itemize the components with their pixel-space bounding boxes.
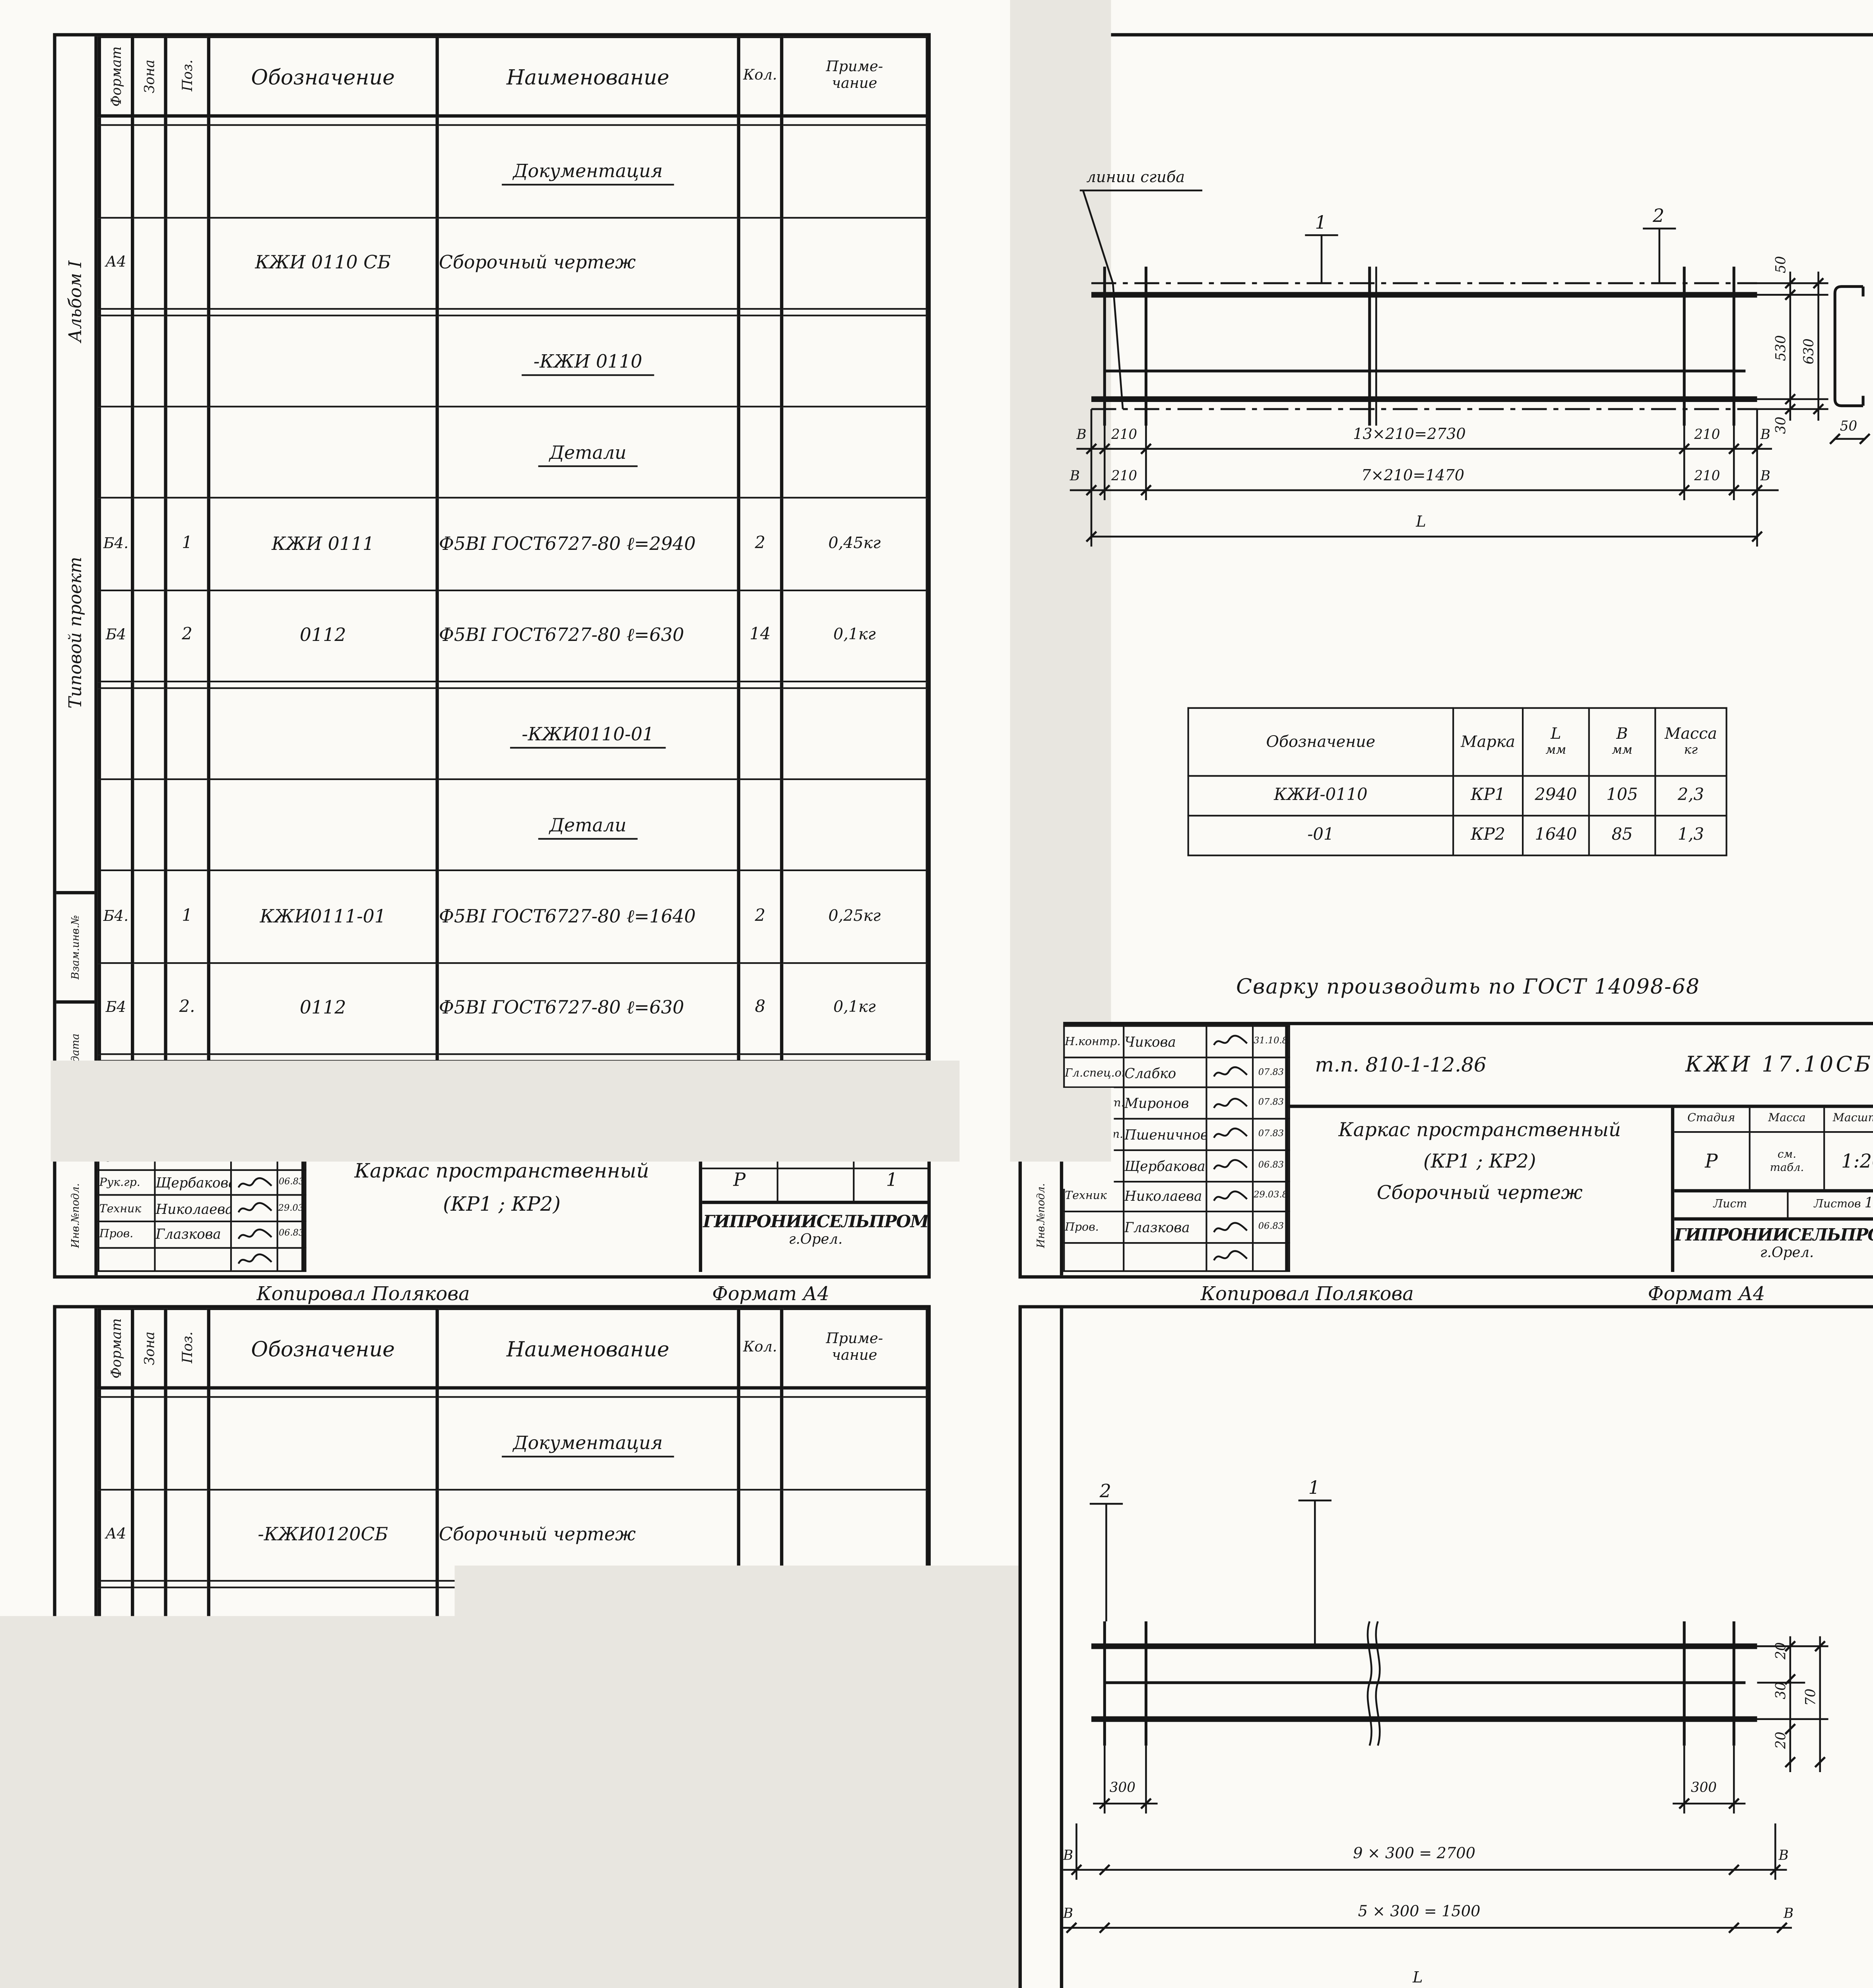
col-format: Формат — [109, 46, 122, 107]
col-zone: Зона — [142, 59, 156, 93]
person-date: 07.83 — [278, 1118, 306, 1143]
type-project-number: т.п. 810-1-12.86 — [1315, 1053, 1486, 1076]
svg-text:В: В — [1760, 427, 1770, 443]
weld-note: Сварку производить по ГОСТ 14098-68 — [1063, 974, 1873, 998]
cell-pos — [166, 1679, 209, 1770]
horizontal-dimension-chains: 300 300 В 9 × 300 = 2700 В В 5 — [1063, 1745, 1793, 1988]
person-date: 07.83 — [1253, 1057, 1289, 1088]
person-date: 29.03.83 — [1253, 1181, 1289, 1212]
spec-row: Детали — [99, 779, 928, 871]
cell-qty — [739, 681, 782, 688]
cell-zone — [132, 116, 165, 126]
signature-squiggle — [234, 1175, 274, 1190]
title-block-spec-0110: Н.контр. Чикова 31.10.83 Гл.спец.отд — [98, 1062, 929, 1272]
cell-pos — [166, 1489, 209, 1580]
person-date: 07.83 — [1253, 1088, 1289, 1119]
marks-header: Обозначение Марка Lмм Вмм Массакг — [1188, 708, 1727, 776]
person-name: Николаева — [155, 1196, 231, 1221]
mass-see-table: см.табл. — [1750, 1133, 1825, 1189]
person-role: Н.контр. — [1064, 1026, 1124, 1057]
spec-row — [99, 309, 928, 315]
cell-qty — [739, 315, 782, 407]
person-role: Рук.сект. — [99, 1143, 155, 1169]
cell-name: Ф5ВI ГОСТ6727-80 ℓ=1640 — [437, 871, 739, 963]
svg-text:70: 70 — [1803, 1689, 1819, 1706]
svg-text:2: 2 — [1652, 205, 1664, 226]
person-role: Техник — [99, 1196, 155, 1221]
position-balloon-2: 2 — [1090, 1480, 1123, 1621]
cell-designation — [209, 407, 437, 498]
spec-row: -КЖИ 0110 — [99, 315, 928, 407]
signature-squiggle — [1210, 1127, 1250, 1142]
svg-text:20: 20 — [1773, 1642, 1789, 1660]
cell-pos — [166, 1581, 209, 1587]
svg-text:В: В — [1063, 1906, 1073, 1922]
signature-squiggle — [1210, 1096, 1250, 1110]
person-role: Н.контр. — [99, 1066, 155, 1091]
cell-zone — [132, 590, 165, 681]
person-name: Миронов — [155, 1118, 231, 1143]
person-name: Щербакова — [1124, 1150, 1206, 1181]
spec-row — [99, 1054, 928, 1061]
col-note: Приме-чание — [782, 37, 928, 116]
cell-designation: -КЖИ0120СБ — [209, 1489, 437, 1580]
person-signature — [1206, 1243, 1253, 1271]
cell-pos — [166, 688, 209, 779]
person-signature — [1206, 1181, 1253, 1212]
position-balloon-2: 2 — [1643, 205, 1676, 283]
side-stamps: Взам.инв.№ Подпись и дата Инв.№подл. — [56, 891, 95, 1275]
svg-text:В: В — [1069, 468, 1080, 484]
mesh-drawing: 2 1 — [1063, 1474, 1873, 1988]
cell-zone — [132, 217, 165, 309]
cell-pos — [166, 315, 209, 407]
cell-note — [782, 1953, 928, 1960]
cell-zone — [132, 315, 165, 407]
svg-text:5 × 300 = 1500: 5 × 300 = 1500 — [1358, 1902, 1481, 1920]
cell-qty — [739, 1587, 782, 1679]
cell-zone — [132, 1770, 165, 1862]
cell-pos: 1 — [166, 498, 209, 590]
person-name: Миронов — [1124, 1088, 1206, 1119]
spec-row: Детали — [99, 1679, 928, 1770]
svg-text:L: L — [1415, 513, 1426, 531]
cell-format — [99, 1953, 132, 1960]
spec-row: -КЖИ0120-01 — [99, 1960, 928, 1988]
cell-name: Сборочный чертеж — [437, 217, 739, 309]
cell-designation: КЖИ 0110 СБ — [209, 217, 437, 309]
person-date: 06.83 — [1253, 1150, 1289, 1181]
cell-note — [782, 1581, 928, 1587]
person-role: Пров. — [99, 1221, 155, 1247]
sheet-drawing-0110: Взам.инв.№ Подпись и дата Инв.№подл. лин… — [1019, 33, 1873, 1278]
svg-text:30: 30 — [1773, 1682, 1789, 1699]
cell-note — [782, 1679, 928, 1770]
person-name: Пшеничнов — [155, 1143, 231, 1169]
cell-name — [437, 1581, 739, 1587]
person-signature — [1206, 1057, 1253, 1088]
cell-format: Б4 — [99, 963, 132, 1054]
cell-note — [782, 688, 928, 779]
cell-qty — [739, 1489, 782, 1580]
signature-squiggle — [1210, 1220, 1250, 1235]
svg-text:630: 630 — [1801, 338, 1817, 364]
cell-zone — [132, 1953, 165, 1960]
person-name: Чикова — [155, 1066, 231, 1091]
cell-zone — [132, 688, 165, 779]
cell-qty — [739, 688, 782, 779]
personnel-table: Н.контр. Чикова 31.10.83 Гл.спец.отд — [98, 1065, 307, 1272]
person-name: Глазкова — [1124, 1212, 1206, 1243]
signature-squiggle — [1210, 1250, 1250, 1264]
personnel-row: Гл.конст. Миронов 07.83 — [1064, 1088, 1289, 1119]
mt-mark: КР1 — [1453, 776, 1523, 815]
cell-name: Детали — [437, 779, 739, 871]
stage-headers: СтадияМассаМасштаб — [1674, 1108, 1873, 1133]
cell-format: Б4 — [99, 1862, 132, 1953]
cell-format — [99, 1960, 132, 1988]
person-role: Пров. — [1064, 1212, 1124, 1243]
cell-zone — [132, 871, 165, 963]
svg-text:В: В — [1063, 1848, 1073, 1864]
svg-text:9 × 300 = 2700: 9 × 300 = 2700 — [1353, 1844, 1475, 1862]
cell-designation — [209, 116, 437, 126]
mt-mass: 2,3 — [1655, 776, 1726, 815]
cell-qty: 14 — [739, 590, 782, 681]
person-signature — [231, 1170, 278, 1196]
svg-text:210: 210 — [1694, 468, 1720, 484]
spec-row — [99, 116, 928, 126]
sheet-spec-0110: Альбом I Типовой проект Взам.инв.№ Подпи… — [53, 33, 931, 1278]
col-pos: Поз. — [181, 60, 194, 92]
svg-text:13×210=2730: 13×210=2730 — [1353, 425, 1466, 443]
cell-note: 0,01кг — [782, 1862, 928, 1953]
person-role: Гл.спец.отд — [1064, 1057, 1124, 1088]
signature-squiggle — [1210, 1158, 1250, 1173]
cell-designation — [209, 315, 437, 407]
cell-note — [782, 1054, 928, 1061]
vertical-dimensions: 50 530 30 630 — [1757, 256, 1828, 434]
cell-zone — [132, 1587, 165, 1679]
cell-zone — [132, 126, 165, 217]
mt-width: 105 — [1589, 776, 1656, 815]
cell-pos — [166, 407, 209, 498]
cell-designation: КЖИ0111-01 — [209, 871, 437, 963]
cell-format — [99, 1398, 132, 1489]
cell-name: -КЖИ0120 — [437, 1587, 739, 1679]
cell-pos — [166, 116, 209, 126]
sheet-spec-0120: 21549-01 53 Взам.инв.№ Подпись и дата Ин… — [53, 1305, 931, 1988]
person-signature — [1206, 1088, 1253, 1119]
cell-format: А4 — [99, 1489, 132, 1580]
cell-zone — [132, 1960, 165, 1988]
doc-name: Каркас пространственный (КР1 ; КР2) Сбор… — [1289, 1108, 1675, 1272]
spec-row: Б4 2. 0112 Ф5ВI ГОСТ6727-80 ℓ=630 8 0,1к… — [99, 963, 928, 1054]
cell-designation: КЖИ0122 — [209, 1862, 437, 1953]
person-signature — [231, 1118, 278, 1143]
col-qty: Кол. — [739, 37, 782, 116]
cell-name: Документация — [437, 1398, 739, 1489]
person-signature — [231, 1066, 278, 1091]
signature-squiggle — [234, 1201, 274, 1216]
cell-note — [782, 407, 928, 498]
col-qty: Кол. — [739, 1309, 782, 1388]
cell-format — [99, 681, 132, 688]
spec-table-0110: Формат Зона Поз. Обозначение Наименовани… — [98, 37, 929, 1062]
person-date: 07.83 — [1253, 1119, 1289, 1150]
cell-format: Б4 — [99, 590, 132, 681]
signature-squiggle — [234, 1227, 274, 1242]
cell-format — [99, 309, 132, 315]
cell-zone — [132, 1862, 165, 1953]
cell-zone — [132, 1054, 165, 1061]
svg-text:1: 1 — [1308, 1477, 1320, 1498]
spec-row — [99, 1953, 928, 1960]
cell-pos — [166, 309, 209, 315]
person-role: Рук.гр. — [99, 1170, 155, 1196]
cell-qty — [739, 1054, 782, 1061]
person-signature — [231, 1196, 278, 1221]
cell-pos: 2 — [166, 590, 209, 681]
col-zone: Зона — [142, 1331, 156, 1365]
spec-row: Б4 2 0112 Ф5ВI ГОСТ6727-80 ℓ=630 14 0,1к… — [99, 590, 928, 681]
signature-squiggle — [234, 1123, 274, 1138]
cell-designation — [209, 126, 437, 217]
mt-length: 2940 — [1523, 776, 1589, 815]
person-name: Глазкова — [155, 1221, 231, 1247]
cell-qty: 2 — [739, 1770, 782, 1862]
spec-row: Б4 2 КЖИ0122 Ф5ВI ГОСТ 6727-80 ℓ=70 10 0… — [99, 1862, 928, 1953]
personnel-row: Н.контр. Чикова 31.10.83 — [1064, 1026, 1289, 1057]
person-name: Слабко — [1124, 1057, 1206, 1088]
cell-pos: 2. — [166, 963, 209, 1054]
person-date: 07.83 — [278, 1092, 306, 1118]
cell-name — [437, 681, 739, 688]
cell-designation — [209, 779, 437, 871]
sheet-drawing-0110-margin: Взам.инв.№ Подпись и дата Инв.№подл. — [1022, 37, 1063, 1276]
personnel-row: Техник Николаева 29.03.83 — [1064, 1181, 1289, 1212]
cell-note — [782, 1398, 928, 1489]
cell-qty — [739, 217, 782, 309]
cell-designation: -КЖИ0121 — [209, 1770, 437, 1862]
person-role: Техник — [1064, 1181, 1124, 1212]
svg-text:В: В — [1783, 1906, 1793, 1922]
cell-zone — [132, 1489, 165, 1580]
personnel-row: Гл.спец.отд Слабко 07.83 — [1064, 1057, 1289, 1088]
signature-squiggle — [1210, 1034, 1250, 1049]
doc-code: КЖИ 17.10 — [305, 1065, 929, 1146]
person-signature — [231, 1143, 278, 1169]
svg-text:L: L — [1412, 1969, 1423, 1986]
cell-pos — [166, 126, 209, 217]
marks-row: -01 КР2 1640 85 1,3 — [1188, 815, 1727, 855]
signature-squiggle — [1210, 1065, 1250, 1080]
marks-row: КЖИ-0110 КР1 2940 105 2,3 — [1188, 776, 1727, 815]
vertical-dimensions: 20 30 20 70 — [1757, 1636, 1828, 1772]
col-format: Формат — [109, 1318, 122, 1378]
cell-format — [99, 1388, 132, 1398]
spec-row — [99, 681, 928, 688]
person-role: Гл.конст. — [1064, 1088, 1124, 1119]
person-signature — [231, 1092, 278, 1118]
organization: ГИПРОНИИСЕЛЬПРОМ г.Орел. — [1674, 1221, 1873, 1272]
cell-note: 0,1кг — [782, 590, 928, 681]
person-signature — [1206, 1026, 1253, 1057]
col-designation: Обозначение — [209, 37, 437, 116]
position-balloon-1: 1 — [1305, 212, 1338, 283]
sheet-drawing-0120-margin: Взам.инв.№ Подпись и дата Инв.№подл. — [1022, 1309, 1063, 1988]
svg-text:530: 530 — [1773, 335, 1789, 361]
cell-designation — [209, 1587, 437, 1679]
cell-name: Ф5ВI ГОСТ 6727-80 ℓ=70 — [437, 1862, 739, 1953]
cell-qty: 2 — [739, 871, 782, 963]
cell-qty — [739, 1398, 782, 1489]
cell-qty: 10 — [739, 1862, 782, 1953]
cell-note — [782, 779, 928, 871]
svg-text:30: 30 — [1773, 417, 1789, 434]
cell-name: Ф5ВI ГОСТ6727-80 ℓ=630 — [437, 963, 739, 1054]
spec-row — [99, 1388, 928, 1398]
cell-qty — [739, 126, 782, 217]
svg-text:линии сгиба: линии сгиба — [1087, 168, 1185, 186]
cell-name: Детали — [437, 1679, 739, 1770]
footer-copied-tl: Копировал Полякова — [257, 1282, 470, 1305]
svg-text:300: 300 — [1110, 1780, 1135, 1796]
cell-qty — [739, 407, 782, 498]
cell-note — [782, 1587, 928, 1679]
cell-note: 0,45кг — [782, 1770, 928, 1862]
mt-length: 1640 — [1523, 815, 1589, 855]
cell-name: Ф5ВI ГОСТ6727-80 ℓ=630 — [437, 590, 739, 681]
mt-col-mark: Марка — [1453, 708, 1523, 776]
cell-note — [782, 681, 928, 688]
album-label: Альбом I — [66, 161, 85, 442]
channel-profile-section: 50 — [1830, 287, 1870, 444]
cell-qty — [739, 779, 782, 871]
signature-squiggle — [234, 1149, 274, 1164]
stamp-inv: Инв.№подл. — [1035, 1116, 1046, 1315]
cell-name: Детали — [437, 407, 739, 498]
cell-designation — [209, 1054, 437, 1061]
cell-designation — [209, 1960, 437, 1988]
cell-note: 0,25кг — [782, 871, 928, 963]
sheet-spec-0120-margin: 21549-01 53 Взам.инв.№ Подпись и дата Ин… — [56, 1309, 98, 1988]
cell-pos — [166, 217, 209, 309]
personnel-row: Рук.сект. Пшеничнов 07.83 — [1064, 1119, 1289, 1150]
spec-row: Б4. 1 КЖИ 0111 Ф5ВI ГОСТ6727-80 ℓ=2940 2… — [99, 498, 928, 590]
title-block-drawing-0110: Н.контр. Чикова 31.10.83 Гл.спец.отд — [1063, 1022, 1873, 1272]
col-note: Приме-чание — [782, 1309, 928, 1388]
cell-qty: 8 — [739, 963, 782, 1054]
person-date — [1253, 1243, 1289, 1271]
personnel-row — [99, 1247, 306, 1271]
cell-format — [99, 1581, 132, 1587]
cell-designation — [209, 688, 437, 779]
cell-pos — [166, 779, 209, 871]
signature-squiggle — [234, 1097, 274, 1112]
person-name — [1124, 1243, 1206, 1271]
person-date: 06.83 — [1253, 1212, 1289, 1243]
col-pos: Поз. — [181, 1332, 194, 1364]
cell-format — [99, 688, 132, 779]
cell-note: 0,45кг — [782, 498, 928, 590]
cell-zone — [132, 407, 165, 498]
person-name: Щербакова — [155, 1170, 231, 1196]
footer-format-tl: Формат А4 — [712, 1282, 829, 1305]
cell-qty — [739, 1960, 782, 1988]
personnel-row: Рук.гр. Щербакова 06.83 — [1064, 1150, 1289, 1181]
person-role: Гл.констр. — [99, 1118, 155, 1143]
mesh-lines — [1091, 1621, 1757, 1745]
personnel-row: Пров. Глазкова 06.83 — [99, 1221, 306, 1247]
person-signature — [1206, 1119, 1253, 1150]
mt-mark: КР2 — [1453, 815, 1523, 855]
cell-pos — [166, 1054, 209, 1061]
scanned-drawing-page: Альбом I Типовой проект Взам.инв.№ Подпи… — [0, 0, 1873, 1988]
cell-zone — [132, 963, 165, 1054]
cell-qty — [739, 1581, 782, 1587]
cell-zone — [132, 1581, 165, 1587]
svg-text:50: 50 — [1840, 418, 1857, 434]
personnel-row: Техник Николаева 29.03.83 — [99, 1196, 306, 1221]
cell-zone — [132, 681, 165, 688]
svg-text:7×210=1470: 7×210=1470 — [1361, 466, 1464, 484]
cell-name — [437, 116, 739, 126]
svg-text:2: 2 — [1099, 1480, 1111, 1502]
cell-note — [782, 126, 928, 217]
cell-pos — [166, 1587, 209, 1679]
cell-pos — [166, 1953, 209, 1960]
spec-header-row: Формат Зона Поз. Обозначение Наименовани… — [99, 1309, 928, 1388]
cell-pos: 2 — [166, 1862, 209, 1953]
person-role — [1064, 1243, 1124, 1271]
cell-name: -КЖИ0110-01 — [437, 688, 739, 779]
doc-name: Каркас пространственный (КР1 ; КР2) — [305, 1146, 702, 1272]
cell-format — [99, 126, 132, 217]
cell-name: Сборочный чертеж — [437, 1489, 739, 1580]
spec-header-row: Формат Зона Поз. Обозначение Наименовани… — [99, 37, 928, 116]
cell-zone — [132, 1679, 165, 1770]
cell-note — [782, 1489, 928, 1580]
person-date: 07.83 — [278, 1143, 306, 1169]
sheet-spec-0110-margin: Альбом I Типовой проект Взам.инв.№ Подпи… — [56, 37, 98, 1276]
fold-line-callout: линии сгиба — [1080, 168, 1202, 409]
spec-table-0120: Формат Зона Поз. Обозначение Наименовани… — [98, 1309, 929, 1988]
position-balloon-1: 1 — [1298, 1477, 1331, 1646]
cell-pos — [166, 1398, 209, 1489]
person-signature — [231, 1221, 278, 1247]
cell-designation — [209, 1679, 437, 1770]
svg-text:210: 210 — [1111, 468, 1137, 484]
person-date: 31.10.83 — [1253, 1026, 1289, 1057]
personnel-row: Рук.гр. Щербакова 06.83 — [99, 1170, 306, 1196]
cell-name — [437, 1388, 739, 1398]
cell-pos: 1 — [166, 1770, 209, 1862]
cell-designation: 0112 — [209, 963, 437, 1054]
spec-row: А4 -КЖИ0120СБ Сборочный чертеж — [99, 1489, 928, 1580]
cell-format: А4 — [99, 217, 132, 309]
cell-name: Ф5ВI ГОСТ6727-80 ℓ=2940 — [437, 498, 739, 590]
mt-designation: -01 — [1188, 815, 1453, 855]
cell-note — [782, 1388, 928, 1398]
cell-format — [99, 1054, 132, 1061]
cell-format — [99, 315, 132, 407]
cell-pos — [166, 681, 209, 688]
person-date: 06.83 — [278, 1170, 306, 1196]
cell-qty — [739, 309, 782, 315]
cell-zone — [132, 498, 165, 590]
mt-col-designation: Обозначение — [1188, 708, 1453, 776]
